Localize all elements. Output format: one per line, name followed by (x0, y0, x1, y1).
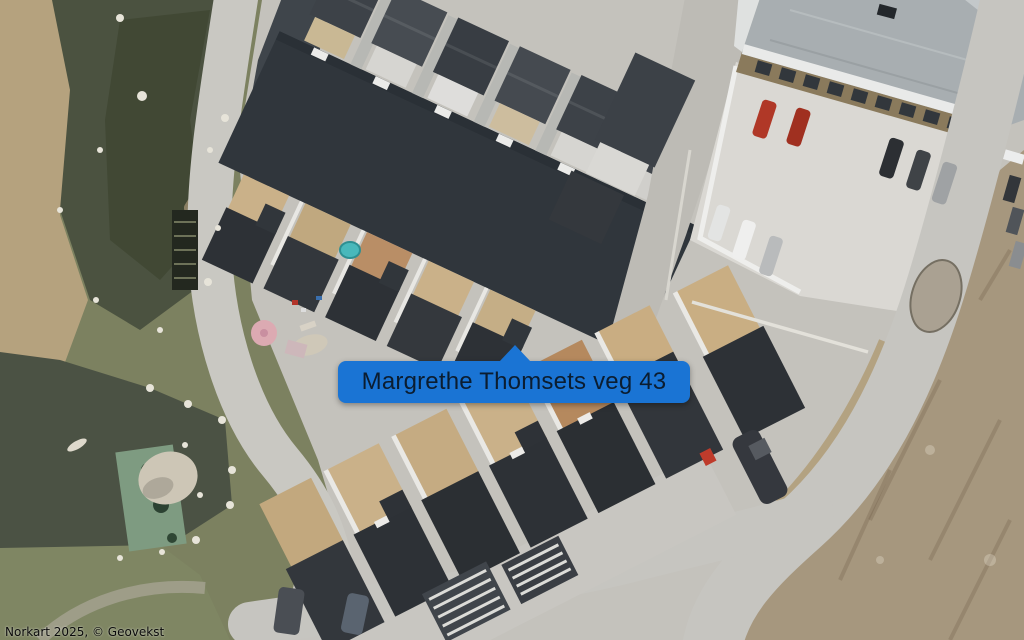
trampoline (340, 242, 360, 258)
map-attribution: Norkart 2025, © Geovekst (5, 625, 164, 639)
timber-stack (172, 210, 198, 290)
aerial-imagery (0, 0, 1024, 640)
address-callout[interactable]: Margrethe Thomsets veg 43 (338, 361, 690, 403)
address-callout-label: Margrethe Thomsets veg 43 (362, 368, 667, 396)
map-viewport[interactable]: Margrethe Thomsets veg 43 Norkart 2025, … (0, 0, 1024, 640)
